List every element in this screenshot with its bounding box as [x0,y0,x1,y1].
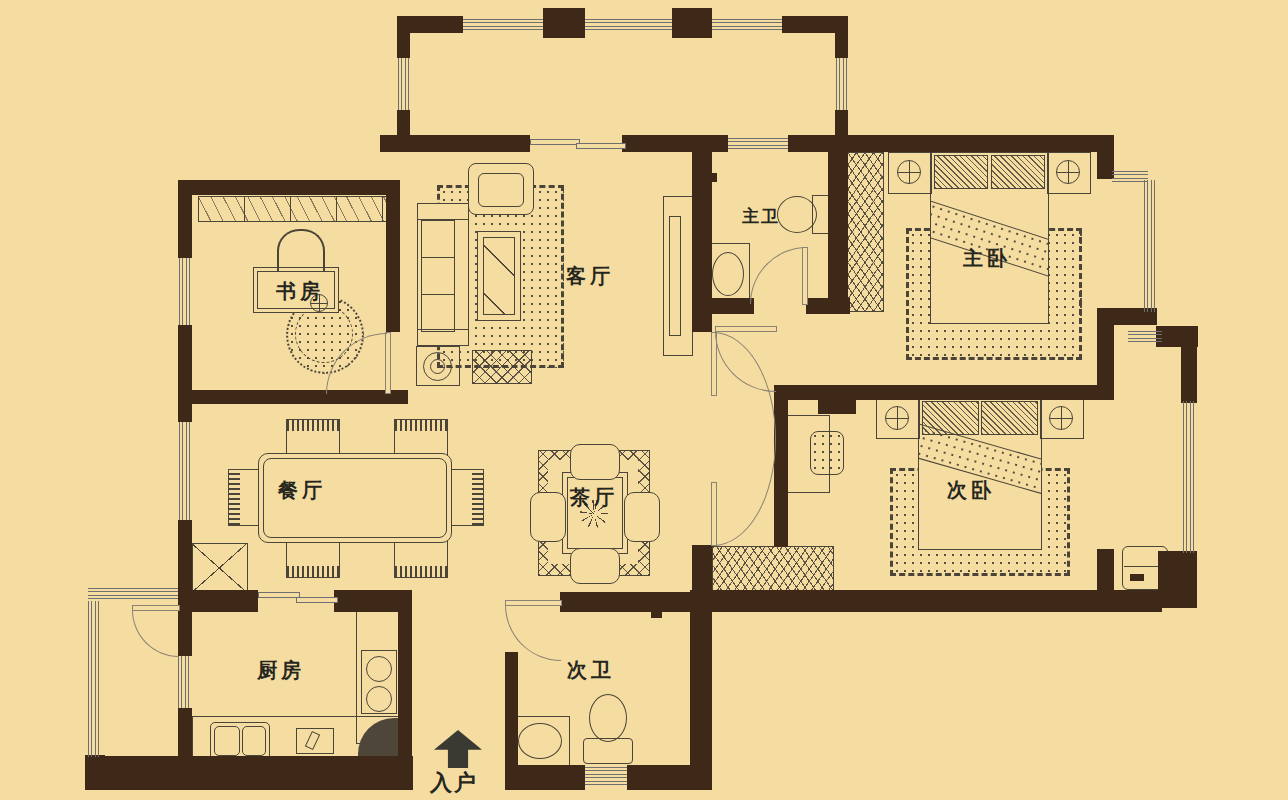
sink-basin [518,723,562,759]
tea-chair [570,444,620,480]
north-wall [622,135,728,152]
master-bath-south-wall [692,298,754,314]
study-window [179,258,191,325]
service-balcony-window [88,601,101,757]
master-bath-label: 主卫 [742,205,780,228]
balcony-window [463,19,543,30]
east-wall [1156,326,1198,347]
pillow [981,401,1038,435]
east-wall [1097,549,1114,592]
balcony-sliding-door [576,143,626,149]
second-bath-window [585,767,627,787]
coffee-table-glass [483,237,515,315]
kitchen-sliding-door [296,597,338,603]
entry-arrow-icon [434,730,482,768]
second-bath-east-wall [690,590,712,790]
toilet-bowl [777,196,817,233]
north-wall [380,135,530,152]
tea-chair [570,548,620,584]
master-bay-window [1112,171,1148,182]
south-wall [690,590,1162,612]
balcony-window [836,58,847,110]
south-outer-wall [85,756,413,790]
doormat [472,350,532,384]
balcony-window [712,19,782,30]
lamp-icon [1049,406,1073,430]
corridor-wardrobe [712,546,834,592]
pillow [991,155,1045,189]
balcony-column [543,8,585,38]
balcony-column [672,8,712,38]
sofa-cushion [421,220,455,258]
master-bed-west-wall [828,150,848,314]
kitchen-west-window [178,656,192,708]
toilet-bowl [589,694,627,742]
study-top-wall [178,180,400,195]
burner [366,656,392,682]
south-outer-wall [627,765,712,790]
lamp-icon [1056,160,1080,184]
corner-window [1128,331,1162,342]
sofa-cushion [421,294,455,332]
desk-chair [810,431,844,475]
water-heater-detail [1130,574,1144,581]
pillow [922,401,979,435]
sofa-armrest [417,203,469,220]
dining-label: 餐厅 [278,477,326,504]
dining-chair [286,538,340,578]
second-bedroom-label: 次卧 [947,477,995,504]
master-bath-door-arc [750,247,807,304]
kitchen-label: 厨房 [257,657,305,684]
lamp-icon [885,406,909,430]
balcony-sliding-door [530,139,580,145]
master-bedroom-label: 主卧 [963,245,1011,272]
tea-chair [530,492,566,542]
balcony-window [398,58,409,110]
tea-label: 茶厅 [570,484,618,511]
hall-door-leaf [711,482,717,546]
shaft [192,543,248,593]
sink-basin [242,726,266,756]
balcony-door-arc [132,610,179,657]
south-outer-wall [505,765,585,790]
west-wall [178,612,192,656]
master-bath-window [728,138,788,149]
second-bed-bay-window [1183,401,1196,553]
study-east-wall [386,180,400,332]
tea-chair [624,492,660,542]
study-chair [277,229,325,271]
pillow [934,155,988,189]
armchair-seat [478,173,524,207]
balcony-window [585,19,672,30]
master-wardrobe [846,152,884,312]
kitchen-sliding-door [258,592,300,598]
second-bed-west-wall [774,385,788,547]
living-east-wall [692,545,712,595]
east-wall [1158,551,1197,608]
burner [366,686,392,712]
column [818,398,856,414]
balcony-wall [835,16,848,58]
master-bay-window [1144,180,1156,312]
master-bath-door-leaf [802,247,808,305]
sink-basin [712,252,744,296]
kitchen-north-wall [178,590,258,612]
entry-label: 入户 [430,768,478,798]
study-cabinet [198,196,390,222]
study-label: 书房 [276,278,324,305]
second-bath-west-wall [505,652,518,767]
east-wall [1181,345,1197,403]
lamp-icon [897,160,921,184]
service-balcony-window [88,588,178,601]
sofa-cushion [421,257,455,295]
dining-chair [394,538,448,578]
table-lamp-inner [430,359,445,374]
living-label: 客厅 [566,263,614,290]
dining-window [179,422,191,520]
sink-basin [214,726,240,756]
balcony-wall [397,16,410,58]
west-wall [178,325,192,422]
tv-screen [669,216,681,336]
floor-plan: 书房 客厅 主卫 主卧 餐厅 茶厅 次卧 厨房 次卫 入户 [0,0,1288,800]
west-wall [178,180,192,258]
second-bath-label: 次卫 [567,657,615,684]
